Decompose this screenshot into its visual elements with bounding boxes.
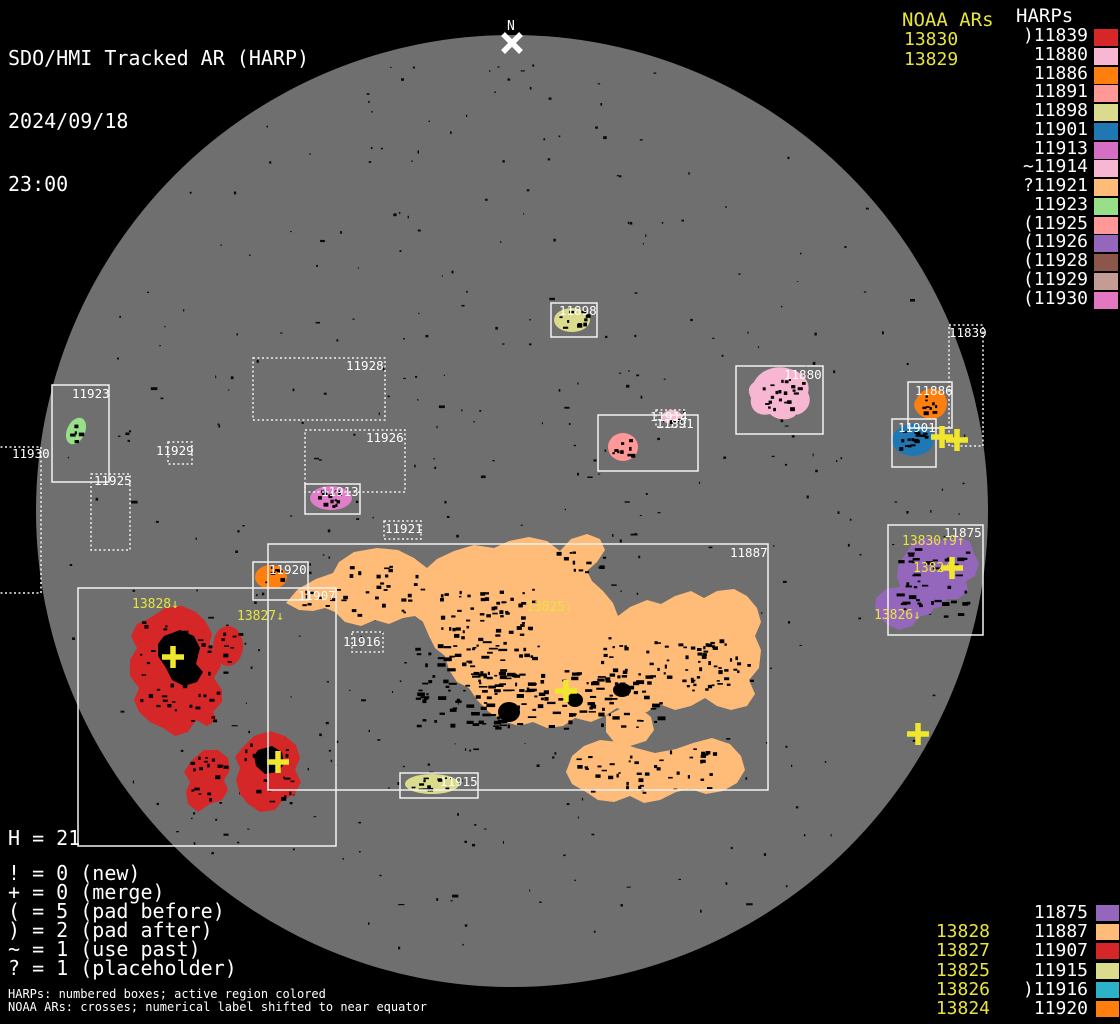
harp-box-label-11891: 11891 [656,416,694,431]
harp-number: 11907 [1000,941,1088,960]
harp-number: 11880 [1000,46,1088,65]
footnote-line: NOAA ARs: crosses; numerical label shift… [8,1001,427,1014]
harp-box-label-11898: 11898 [559,303,597,318]
histogram-count: H = 21 [8,826,80,850]
harp-number: 11898 [1000,102,1088,121]
swatch-11898 [1094,104,1118,121]
swatch-11921 [1094,179,1118,196]
harp-number: 11920 [1000,999,1088,1018]
harp-number: 11901 [1000,121,1088,140]
noaa-ar-number: 13824 [902,999,990,1018]
harp-box-label-11839: 11839 [949,325,987,340]
noaa-label: 13830↑9↑ [902,534,965,549]
noaa-ar-number: 13826 [902,980,990,999]
noaa-ar-number: 13829 [904,50,958,70]
harp-box-label-11930: 11930 [12,446,50,461]
noaa-label: 13828↓ [132,597,179,612]
swatch-11923 [1094,198,1118,215]
header: SDO/HMI Tracked AR (HARP) 2024/09/18 23:… [8,6,309,216]
noaa-ar-number: 13825 [902,961,990,980]
time-label: 23:00 [8,174,309,195]
swatch-11929 [1094,273,1118,290]
harp-number: (11929 [1000,271,1088,290]
harp-box-label-11920: 11920 [269,562,307,577]
swatch-11920 [1096,1001,1119,1017]
harp-box-label-11916: 11916 [343,634,381,649]
flag-legend-line: ? = 1 (placeholder) [8,959,237,978]
noaa-ar-number: 13828 [902,922,990,941]
footnote-line: HARPs: numbered boxes; active region col… [8,988,427,1001]
noaa-label: 13825↓ [526,600,573,615]
footnotes: HARPs: numbered boxes; active region col… [8,988,427,1013]
region-11891 [608,433,638,461]
harp-color-swatches-top [1094,29,1118,310]
swatch-11901 [1094,123,1118,140]
harp-box-label-11907: 11907 [298,588,336,603]
harp-box-label-11925: 11925 [94,473,132,488]
noaa-ar-number [902,903,990,922]
noaa-label: 13827↓ [237,609,284,624]
swatch-11926 [1094,235,1118,252]
noaa-ars-list-bottom: 1382813827138251382613824 [902,903,990,1018]
swatch-11887 [1096,924,1119,940]
harp-box-label-11913: 11913 [321,484,359,499]
harp-box-label-11886: 11886 [915,383,953,398]
harp-box-label-11921: 11921 [385,521,423,536]
harp-box-label-11880: 11880 [784,367,822,382]
harp-box-label-11887: 11887 [730,545,768,560]
swatch-11925 [1094,217,1118,234]
harp-number: ?11921 [1000,177,1088,196]
swatch-11891 [1094,85,1118,102]
swatch-11928 [1094,254,1118,271]
swatch-11875 [1096,905,1119,921]
harp-number: (11930 [1000,290,1088,309]
swatch-11915 [1096,963,1119,979]
swatch-11839 [1094,29,1118,46]
harp-color-swatches-bottom [1096,905,1119,1020]
flag-legend: ! = 0 (new)+ = 0 (merge)( = 5 (pad befor… [8,864,237,978]
harp-box-label-11901: 11901 [898,420,936,435]
noaa-ars-list-top: 1383013829 [904,30,958,70]
harps-list-bottom: 11875118871190711915)1191611920 [1000,903,1088,1018]
swatch-11880 [1094,48,1118,65]
harp-number: )11839 [1000,27,1088,46]
noaa-ars-title: NOAA ARs [902,9,994,31]
swatch-11930 [1094,292,1118,309]
harp-number: (11928 [1000,252,1088,271]
harp-tracker-window: { "header": {"title": "SDO/HMI Tracked A… [0,0,1120,1024]
swatch-11907 [1096,943,1119,959]
harps-list-top: )11839118801188611891118981190111913~119… [1000,27,1088,308]
harp-number: 11875 [1000,903,1088,922]
harp-number: 11915 [1000,961,1088,980]
harp-box-label-11926: 11926 [366,430,404,445]
harp-number: )11916 [1000,980,1088,999]
swatch-11914 [1094,160,1118,177]
harp-box-11930 [0,447,41,593]
harp-number: 11923 [1000,196,1088,215]
harp-box-label-11929: 11929 [156,443,194,458]
swatch-11886 [1094,67,1118,84]
noaa-label: 13826↓ [874,608,921,623]
noaa-ar-number: 13830 [904,30,958,50]
harp-box-label-11923: 11923 [72,386,110,401]
swatch-11913 [1094,142,1118,159]
date-label: 2024/09/18 [8,111,309,132]
harp-box-label-11915: 11915 [440,774,478,789]
harp-box-label-11928: 11928 [346,358,384,373]
noaa-ar-number: 13827 [902,941,990,960]
north-marker-label: N [507,19,515,34]
app-title: SDO/HMI Tracked AR (HARP) [8,48,309,69]
harp-number: 11887 [1000,922,1088,941]
swatch-11916 [1096,982,1119,998]
harps-title: HARPs [1016,5,1073,27]
